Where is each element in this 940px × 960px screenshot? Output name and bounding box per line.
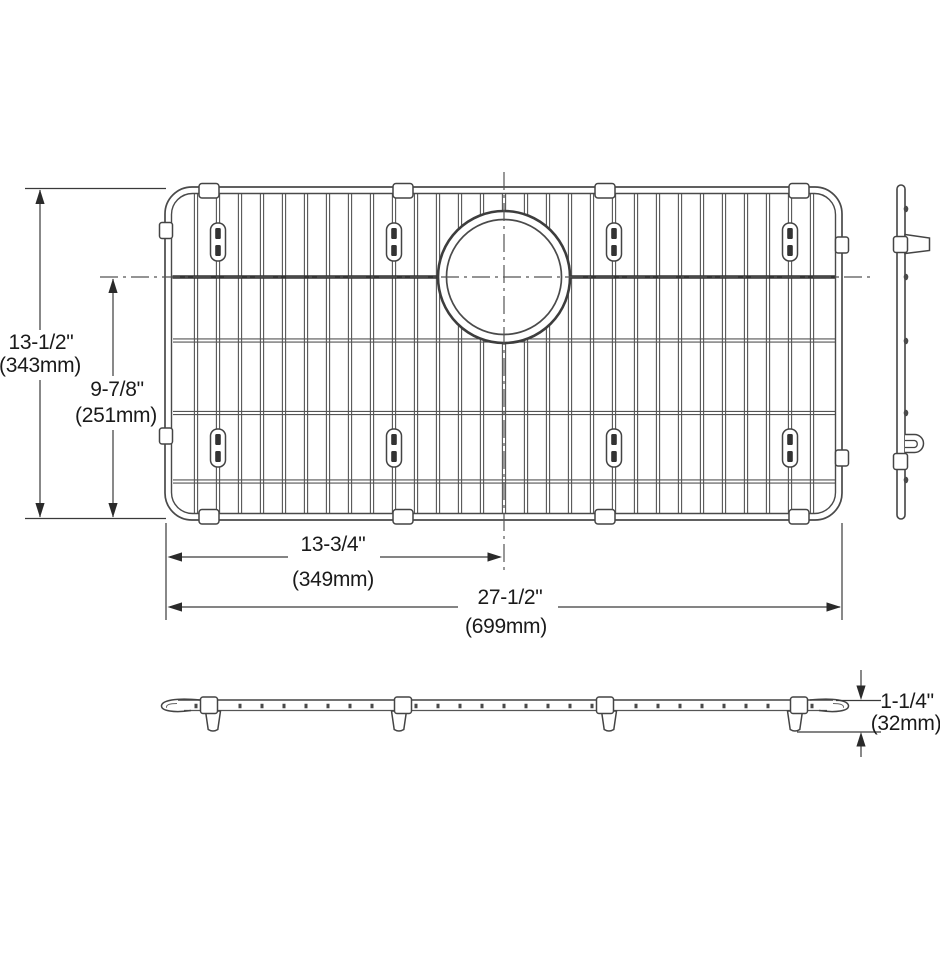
label-center-offset-mm: (349mm) <box>292 568 374 591</box>
wire-clip-bead-top <box>611 434 617 445</box>
perimeter-clip-right <box>836 450 849 466</box>
wire-clip-bead-top <box>787 228 793 239</box>
dimension-arrowhead <box>168 602 183 611</box>
side-wire-end-bump <box>904 410 909 416</box>
perimeter-clip-top <box>595 184 615 199</box>
side-bottom-clip <box>894 454 908 470</box>
wire-clip-bead-bottom <box>611 451 617 462</box>
front-clip <box>395 697 412 714</box>
perimeter-clip-top <box>789 184 809 199</box>
perimeter-clip-bottom <box>595 510 615 525</box>
perimeter-clip-top <box>199 184 219 199</box>
label-partial-height-mm: (251mm) <box>75 404 157 427</box>
dimension-arrowhead <box>488 552 503 561</box>
label-thickness-mm: (32mm) <box>871 712 940 735</box>
side-top-clip <box>894 237 908 253</box>
wire-clip-bead-bottom <box>215 245 221 256</box>
side-wire-end-bump <box>904 338 909 344</box>
wire-clip-bead-top <box>215 434 221 445</box>
dimension-arrowhead <box>856 686 865 701</box>
side-top-foot <box>905 235 930 254</box>
front-clip <box>201 697 218 714</box>
label-overall-width-inches: 27-1/2" <box>478 586 543 609</box>
wire-clip-bead-top <box>787 434 793 445</box>
dimension-arrowhead <box>108 279 117 294</box>
label-partial-height-inches: 9-7/8" <box>90 378 144 401</box>
wire-clip-bead-bottom <box>391 245 397 256</box>
side-wire-end-bump <box>904 274 909 280</box>
front-feet <box>206 711 803 731</box>
side-wire-end-bump <box>904 477 909 483</box>
dimension-arrowhead <box>108 503 117 518</box>
side-bottom-hook <box>905 435 924 453</box>
wire-clip-bead-bottom <box>391 451 397 462</box>
perimeter-clip-bottom <box>789 510 809 525</box>
wire-clip-bead-top <box>611 228 617 239</box>
plan-view <box>100 172 871 570</box>
label-center-offset-inches: 13-3/4" <box>301 533 366 556</box>
side-view <box>894 185 930 519</box>
dimension-arrowhead <box>168 552 183 561</box>
front-right-end-hook-inner <box>833 704 844 708</box>
wire-clip-bead-top <box>215 228 221 239</box>
wire-clip-bead-top <box>391 434 397 445</box>
wire-clip-bead-bottom <box>611 245 617 256</box>
perimeter-clip-bottom <box>199 510 219 525</box>
front-ticks-path <box>196 704 812 709</box>
perimeter-clip-left <box>160 428 173 444</box>
sink-grid-drawing: 13-1/2" (343mm) 9-7/8" (251mm) 13-3/4" (… <box>0 0 940 960</box>
dimension-arrowhead <box>35 503 44 518</box>
front-wire-tick-marks <box>196 704 812 709</box>
perimeter-clip-top <box>393 184 413 199</box>
perimeter-clip-left <box>160 223 173 239</box>
label-overall-width-mm: (699mm) <box>465 615 547 638</box>
wire-clip-bead-bottom <box>787 245 793 256</box>
perimeter-clip-right <box>836 237 849 253</box>
dimension-labels: 13-1/2" (343mm) 9-7/8" (251mm) 13-3/4" (… <box>0 331 940 735</box>
front-left-end-hook-inner <box>166 704 177 708</box>
technical-drawing-canvas: 13-1/2" (343mm) 9-7/8" (251mm) 13-3/4" (… <box>0 0 940 960</box>
label-thickness-inches: 1-1/4" <box>880 690 934 713</box>
front-clip <box>791 697 808 714</box>
dimension-arrowhead <box>827 602 842 611</box>
dimension-arrowhead <box>35 190 44 205</box>
perimeter-clip-bottom <box>393 510 413 525</box>
side-wire-end-bump <box>904 206 909 212</box>
wire-clip-bead-bottom <box>215 451 221 462</box>
label-overall-height-mm: (343mm) <box>0 354 81 377</box>
front-view <box>162 697 849 731</box>
dimension-arrowhead <box>856 732 865 747</box>
front-clip <box>597 697 614 714</box>
wire-clip-bead-bottom <box>787 451 793 462</box>
wire-clip-bead-top <box>391 228 397 239</box>
label-overall-height-inches: 13-1/2" <box>9 331 74 354</box>
